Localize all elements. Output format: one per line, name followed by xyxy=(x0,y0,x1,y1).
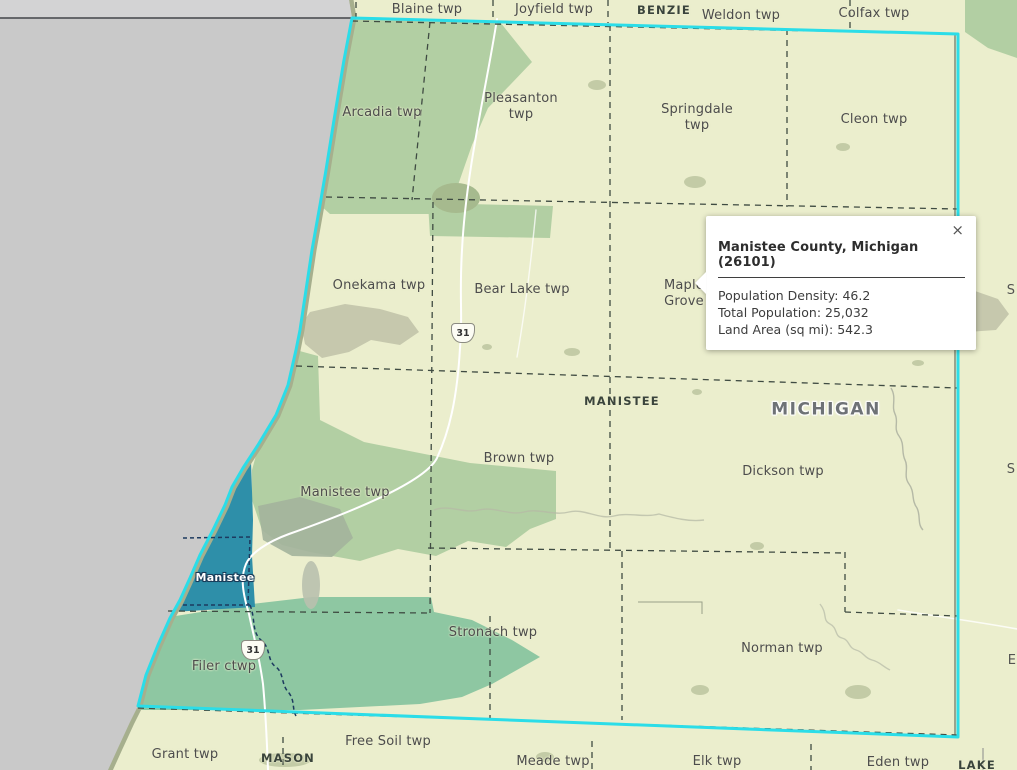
map-label-benzie: BENZIE xyxy=(637,3,691,17)
map-label-weldon-twp: Weldon twp xyxy=(702,8,780,24)
popup-stat-land-area: Land Area (sq mi): 542.3 xyxy=(718,321,965,338)
map-label-elk-twp: Elk twp xyxy=(693,754,742,770)
popup-close-button[interactable]: × xyxy=(949,221,966,240)
map-label-free-soil-twp: Free Soil twp xyxy=(345,734,431,750)
map-label-cleon-twp: Cleon twp xyxy=(841,112,908,128)
map-label-filer-ctwp: Filer ctwp xyxy=(192,659,256,675)
map-label-grant-twp: Grant twp xyxy=(152,747,219,763)
map-label-manistee-twp: Manistee twp xyxy=(300,485,389,501)
map-labels-layer: Blaine twpJoyfield twpWeldon twpColfax t… xyxy=(0,0,1017,770)
map-label-springdale-twp: Springdale twp xyxy=(661,102,733,135)
highway-shield-31: 31 xyxy=(451,323,475,343)
popup-stat-population-density: Population Density: 46.2 xyxy=(718,287,965,304)
popup-title: Manistee County, Michigan (26101) xyxy=(718,240,965,270)
map-label-blaine-twp: Blaine twp xyxy=(392,2,462,18)
map-label-mason: MASON xyxy=(261,751,315,765)
map-label-e: E xyxy=(1008,653,1016,669)
popup-pointer xyxy=(695,272,706,294)
map-label-dickson-twp: Dickson twp xyxy=(742,464,824,480)
map-label-onekama-twp: Onekama twp xyxy=(333,278,426,294)
map-label-s: S xyxy=(1007,283,1015,299)
map-label-bear-lake-twp: Bear Lake twp xyxy=(474,282,569,298)
map-label-stronach-twp: Stronach twp xyxy=(449,625,537,641)
map-label-colfax-twp: Colfax twp xyxy=(839,6,910,22)
map-label-manistee: Manistee xyxy=(195,571,254,585)
map-label-brown-twp: Brown twp xyxy=(484,451,555,467)
map-popup: × Manistee County, Michigan (26101) Popu… xyxy=(706,216,976,350)
map-label-meade-twp: Meade twp xyxy=(516,754,589,770)
popup-divider xyxy=(718,277,965,278)
highway-shield-31: 31 xyxy=(241,640,265,660)
map-label-norman-twp: Norman twp xyxy=(741,641,823,657)
map-label-eden-twp: Eden twp xyxy=(867,755,929,770)
map-label-pleasanton-twp: Pleasanton twp xyxy=(484,91,558,124)
map-label-joyfield-twp: Joyfield twp xyxy=(515,2,593,18)
map-viewport[interactable]: Blaine twpJoyfield twpWeldon twpColfax t… xyxy=(0,0,1017,770)
map-label-michigan: MICHIGAN xyxy=(771,399,881,420)
map-label-arcadia-twp: Arcadia twp xyxy=(342,105,421,121)
popup-stat-total-population: Total Population: 25,032 xyxy=(718,304,965,321)
map-label-s: S xyxy=(1007,462,1015,478)
map-label-manistee: MANISTEE xyxy=(584,394,660,408)
map-label-lake: LAKE xyxy=(958,758,996,770)
